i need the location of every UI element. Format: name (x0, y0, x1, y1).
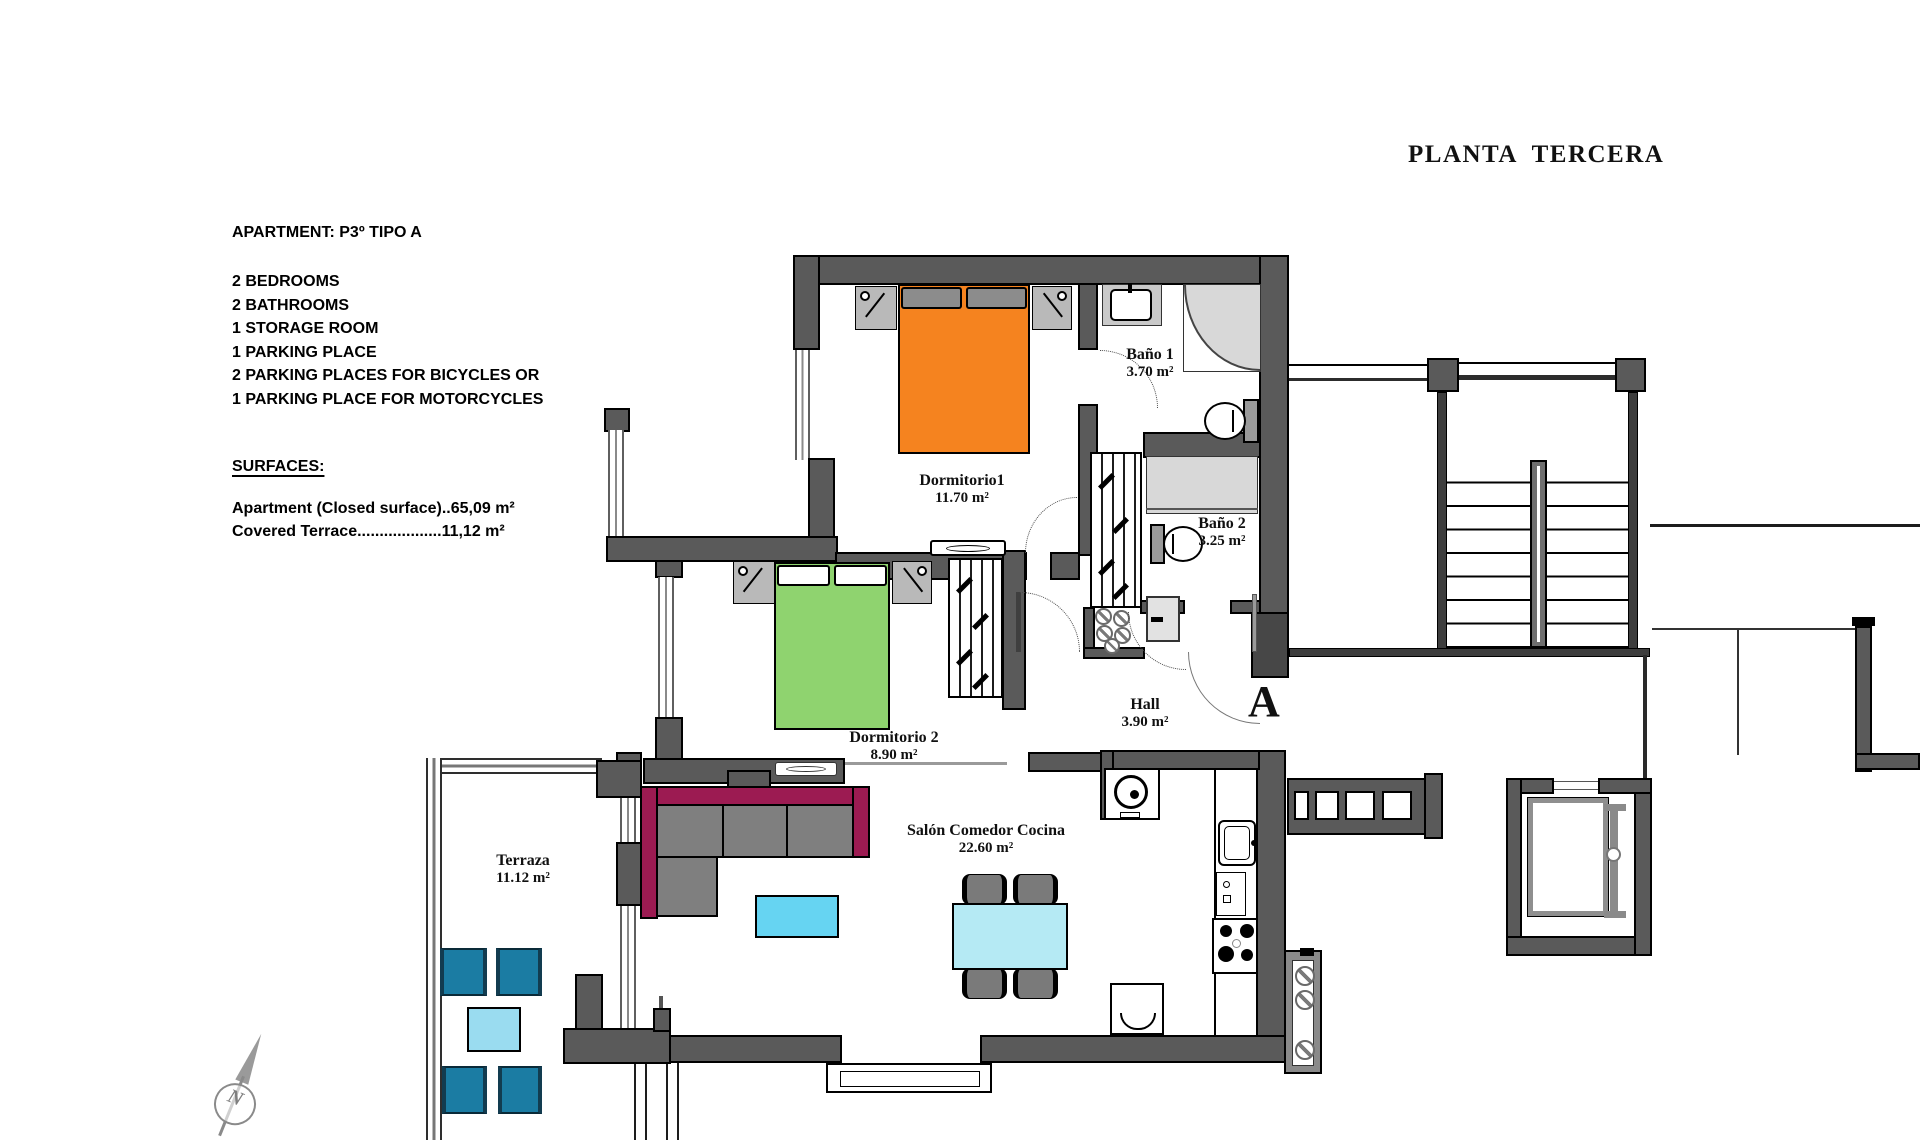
service-shaft (1284, 950, 1322, 1074)
room-area: 8.90 m² (814, 747, 974, 764)
bay-inner-line (840, 1071, 980, 1087)
corridor-line-v (1737, 628, 1739, 755)
sink-icon (1110, 289, 1152, 321)
room-label-terraza: Terraza 11.12 m² (443, 852, 603, 887)
entry-bay (826, 1063, 992, 1093)
nightstand (733, 561, 775, 604)
room-area: 3.90 m² (1065, 714, 1225, 731)
sofa-arm-right (852, 786, 870, 858)
sofa-cushion-line (786, 806, 788, 856)
pillow-icon (966, 287, 1027, 309)
dorm1-left-window (795, 350, 810, 460)
burner-center-icon (1232, 939, 1241, 948)
surface-line: Apartment (Closed surface)..65,09 m² (232, 500, 515, 518)
terrace-chair (442, 1066, 487, 1114)
shaft-connector-line (1643, 655, 1647, 778)
feature-item: 2 BEDROOMS (232, 270, 543, 294)
kitchen-stove (1212, 918, 1258, 974)
shaft-pipe-icon (1295, 990, 1315, 1010)
corridor-band-cap (1424, 773, 1443, 839)
entrance-door-leaf (1252, 594, 1257, 652)
walkway-rail (634, 1063, 647, 1140)
sofa-cushion-line (722, 806, 724, 856)
door-arc-bano2 (1128, 612, 1186, 670)
room-label-bano1: Baño 1 3.70 m² (1070, 346, 1230, 381)
stairs-pillar (1427, 358, 1459, 392)
neighbor-wall-vertical (1855, 626, 1872, 772)
terrace-sliding-door (620, 906, 636, 1035)
elevator-door-line (1554, 781, 1598, 790)
rail-inner-line (1537, 466, 1540, 642)
wall-dorm1-bano1-divider-upper (1078, 283, 1098, 350)
neighbor-wall-cap (1852, 617, 1875, 626)
room-name: Salón Comedor Cocina (886, 822, 1086, 840)
shaft-pipe-icon (1295, 1040, 1315, 1060)
washer-dot-icon (1130, 790, 1139, 799)
room-area: 22.60 m² (886, 840, 1086, 857)
pillow-icon (777, 565, 830, 586)
wall-dorm1-left-upper (793, 255, 820, 350)
oven-knob-icon (1223, 895, 1231, 903)
pillow-icon (834, 565, 887, 586)
stairs-right-wall (1628, 392, 1638, 652)
toilet-seat-line (1232, 410, 1234, 432)
oven-knob-icon (1223, 881, 1230, 888)
hall-wardrobe (1090, 452, 1142, 608)
burner-icon (1241, 949, 1253, 961)
kitchen-base-sink (1110, 983, 1164, 1035)
door-arc-dorm2 (1020, 592, 1080, 652)
corridor-window (1294, 791, 1309, 820)
elevator-top-block (1520, 778, 1554, 794)
stairs-connector-wall (1289, 364, 1427, 381)
neighbor-wall-horizontal (1855, 753, 1920, 770)
wall-kitchen-right (1256, 750, 1286, 1042)
terrace-chair (498, 1066, 542, 1114)
stairs-top-wall (1459, 362, 1615, 380)
toilet-bowl-icon (1204, 402, 1246, 440)
wall-top (793, 255, 1289, 285)
corridor-window (1345, 791, 1375, 820)
room-label-dormitorio2: Dormitorio 2 8.90 m² (814, 729, 974, 764)
dining-chair (962, 874, 1007, 905)
corridor-window (1382, 791, 1412, 820)
bano2-shower-line (1146, 508, 1258, 510)
room-name: Baño 2 (1142, 515, 1302, 533)
dining-chair (1013, 874, 1058, 905)
dresser (930, 540, 1006, 556)
room-label-dormitorio1: Dormitorio1 11.70 m² (882, 472, 1042, 507)
dresser-oval-icon (946, 545, 990, 552)
elevator-mech-tab (1604, 804, 1626, 811)
room-name: Hall (1065, 696, 1225, 714)
stairs-pillar (1615, 358, 1646, 392)
wall-step-cap (604, 408, 630, 432)
nightstand (855, 286, 897, 330)
floor-plan-page: PLANTA TERCERA APARTMENT: P3º TIPO A 2 B… (0, 0, 1920, 1140)
stairs-center-rail (1530, 460, 1547, 648)
living-left-window (620, 798, 636, 842)
corridor-window-band (1287, 778, 1427, 835)
corridor-window (1315, 791, 1339, 820)
page-title: PLANTA TERCERA (1408, 141, 1664, 169)
wall-bottom-right (980, 1035, 1286, 1063)
storage-coil-icon (1104, 638, 1120, 654)
washing-machine (1104, 768, 1160, 820)
nightstand (1032, 286, 1072, 330)
feature-item: 2 PARKING PLACES FOR BICYCLES OR (232, 364, 543, 388)
elevator-wall-right (1634, 778, 1652, 956)
sink-basin-icon (1224, 826, 1250, 860)
wall-step-horizontal (606, 536, 838, 562)
room-name: Dormitorio1 (882, 472, 1042, 490)
dining-chair (1013, 968, 1058, 999)
washer-base-icon (1120, 812, 1140, 818)
elevator-wall-left (1506, 778, 1522, 956)
site-line (1650, 524, 1920, 527)
wall-living-left-b (616, 842, 642, 906)
feature-item: 1 PARKING PLACE (232, 341, 543, 365)
compass-needle-icon (235, 1031, 267, 1084)
feature-list: 2 BEDROOMS 2 BATHROOMS 1 STORAGE ROOM 1 … (232, 270, 543, 411)
stairs-flight-right (1547, 460, 1628, 650)
shaft-pipe-icon (1295, 966, 1315, 986)
apartment-type-line: APARTMENT: P3º TIPO A (232, 224, 422, 242)
dining-chair (962, 968, 1007, 999)
room-name: Dormitorio 2 (814, 729, 974, 747)
room-area: 3.25 m² (1142, 533, 1302, 550)
walkway-rail (666, 1063, 679, 1140)
burner-icon (1240, 924, 1254, 938)
terrace-chair (496, 948, 542, 996)
corridor-line-h (1652, 628, 1857, 630)
room-label-hall: Hall 3.90 m² (1065, 696, 1225, 731)
sofa-chaise (656, 856, 718, 917)
room-area: 11.70 m² (882, 490, 1042, 507)
room-area: 11.12 m² (443, 870, 603, 887)
sofa-seat (656, 804, 854, 858)
wall-kitchen-top (1102, 750, 1260, 770)
terrace-corner-block (596, 760, 642, 798)
terrace-chair (440, 948, 487, 996)
sink-tap-icon (1128, 283, 1132, 293)
coffee-table (755, 895, 839, 938)
north-compass: N (178, 1015, 295, 1140)
bano2-shower (1146, 456, 1258, 514)
stairs-left-wall (1437, 392, 1447, 652)
sofa-back (640, 786, 870, 806)
terrace-table (467, 1007, 521, 1052)
porch-knob (653, 1008, 671, 1032)
dorm2-wardrobe (948, 558, 1003, 698)
feature-item: 1 PARKING PLACE FOR MOTORCYCLES (232, 388, 543, 412)
pillow-icon (901, 287, 962, 309)
bed-double (898, 284, 1030, 454)
wall-hall-salon (1028, 752, 1104, 772)
elevator-top-block (1598, 778, 1652, 794)
wall-dorm2-left-bottom (655, 717, 683, 762)
elevator-car (1528, 798, 1608, 916)
nightstand (892, 561, 932, 604)
wall-dorm2-left-top (655, 560, 683, 578)
stairs-bottom-wall (1289, 648, 1650, 657)
dining-table (952, 903, 1068, 970)
burner-icon (1220, 925, 1232, 937)
room-label-salon: Salón Comedor Cocina 22.60 m² (886, 822, 1086, 857)
apartment-letter: A (1248, 676, 1280, 727)
storage-coil-icon (1095, 608, 1112, 625)
room-name: Terraza (443, 852, 603, 870)
room-label-bano2: Baño 2 3.25 m² (1142, 515, 1302, 550)
dorm2-left-window (658, 577, 674, 719)
burner-icon (1218, 946, 1234, 962)
wall-dorm1-bottom-right (1050, 552, 1080, 580)
elevator-mech-tab (1604, 911, 1626, 918)
terrace-railing-top (426, 758, 602, 774)
room-name: Baño 1 (1070, 346, 1230, 364)
shelf-oval-icon (786, 766, 826, 772)
porch-wall-horizontal (563, 1028, 671, 1064)
wall-right-upper (1259, 255, 1289, 615)
sink-tap-icon (1251, 840, 1257, 846)
surface-line: Covered Terrace...................11,12 … (232, 523, 505, 541)
surfaces-heading: SURFACES: (232, 458, 324, 476)
stairs-flight-left (1447, 460, 1530, 650)
feature-item: 2 BATHROOMS (232, 294, 543, 318)
corner-cap (1300, 948, 1314, 956)
feature-item: 1 STORAGE ROOM (232, 317, 543, 341)
step-window (608, 430, 624, 538)
room-area: 3.70 m² (1070, 364, 1230, 381)
elevator-wall-bottom (1506, 936, 1652, 956)
elevator-pulley-icon (1606, 847, 1621, 862)
kitchen-oven (1216, 872, 1246, 916)
basin-curve-icon (1120, 1013, 1156, 1030)
kitchen-sink (1218, 820, 1256, 866)
bed-double (774, 562, 890, 730)
